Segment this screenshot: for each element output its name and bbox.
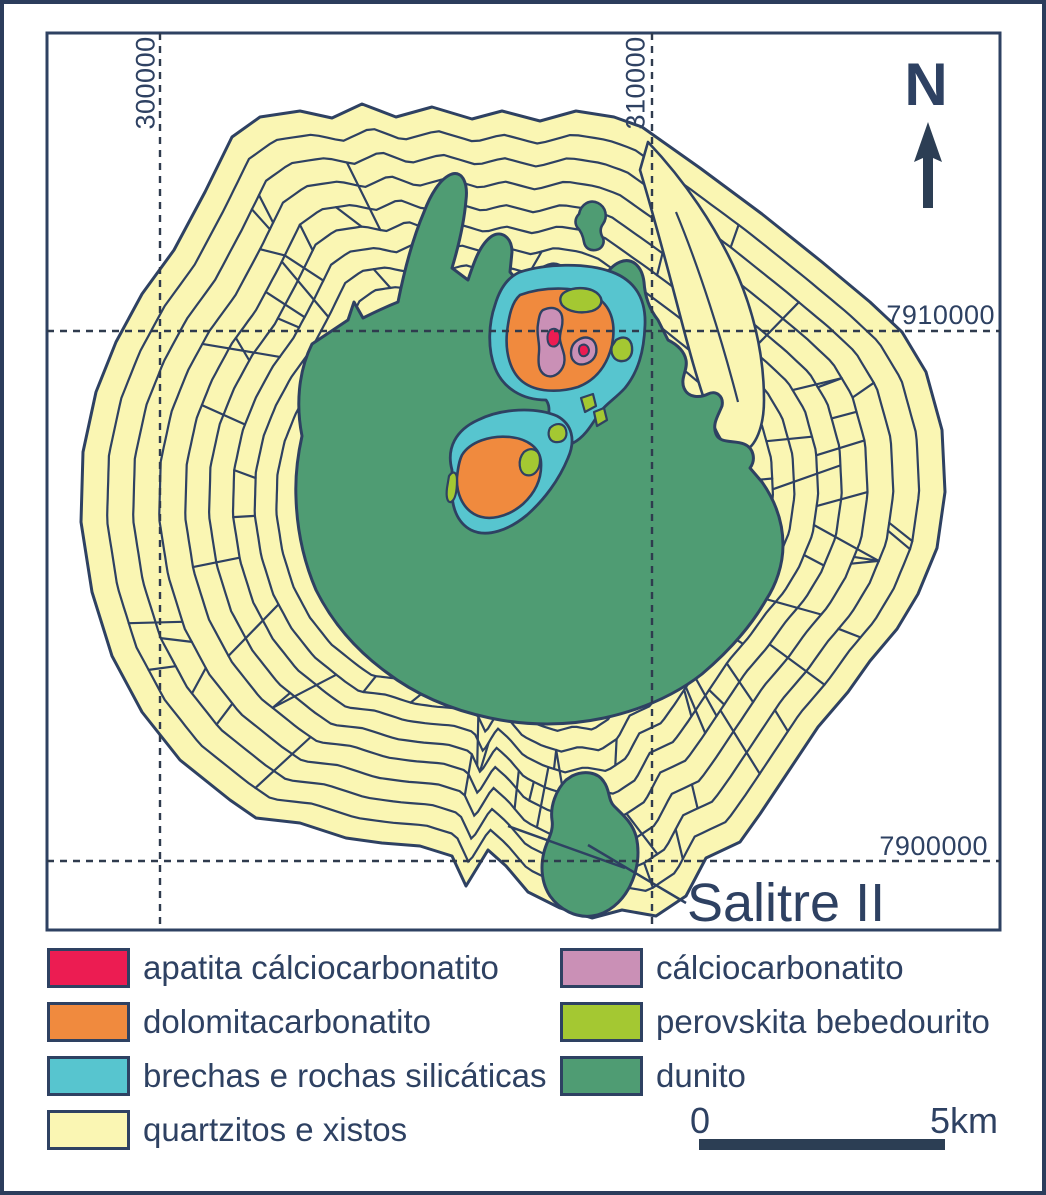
legend-swatch-apatita bbox=[47, 948, 130, 988]
map-region-perovskita-south-3 bbox=[447, 473, 457, 503]
salitre-annotation: Salitre II bbox=[687, 876, 885, 930]
legend-column-left: apatita cálciocarbonatito dolomitacarbon… bbox=[47, 948, 547, 1164]
legend-swatch-quartzitos bbox=[47, 1110, 130, 1150]
legend-item-dunito: dunito bbox=[560, 1056, 990, 1096]
legend-swatch-calcio bbox=[560, 948, 643, 988]
north-label: N bbox=[898, 55, 954, 115]
legend-item-quartzitos: quartzitos e xistos bbox=[47, 1110, 547, 1150]
legend-label-quartzitos: quartzitos e xistos bbox=[143, 1111, 407, 1149]
grid-label-300000: 300000 bbox=[133, 40, 160, 130]
legend-label-dolomita: dolomitacarbonatito bbox=[143, 1003, 431, 1041]
legend-swatch-dolomita bbox=[47, 1002, 130, 1042]
scalebar-start-label: 0 bbox=[690, 1103, 710, 1139]
map-region-perovskita-south-2 bbox=[520, 449, 540, 475]
legend-label-perovskita: perovskita bebedourito bbox=[656, 1003, 990, 1041]
map-region-apatita-2 bbox=[579, 345, 589, 357]
legend-item-perovskita: perovskita bebedourito bbox=[560, 1002, 990, 1042]
legend-item-brechas: brechas e rochas silicáticas bbox=[47, 1056, 547, 1096]
grid-label-7900000: 7900000 bbox=[848, 833, 988, 860]
legend-swatch-brechas bbox=[47, 1056, 130, 1096]
scalebar-end-label: 5km bbox=[930, 1103, 998, 1139]
legend-label-apatita: apatita cálciocarbonatito bbox=[143, 949, 499, 987]
legend-item-calcio: cálciocarbonatito bbox=[560, 948, 990, 988]
grid-label-7910000: 7910000 bbox=[855, 302, 995, 329]
map-region-perovskita-north-top bbox=[560, 288, 601, 312]
grid-label-310000: 310000 bbox=[623, 40, 650, 130]
legend-swatch-perovskita bbox=[560, 1002, 643, 1042]
figure-canvas: 300000 310000 7910000 7900000 N Salitre … bbox=[0, 0, 1046, 1195]
scalebar-bar bbox=[699, 1139, 945, 1150]
map-region-perovskita-north-right bbox=[611, 338, 632, 362]
map-region-perovskita-south-1 bbox=[549, 424, 567, 442]
legend-item-dolomita: dolomitacarbonatito bbox=[47, 1002, 547, 1042]
legend-swatch-dunito bbox=[560, 1056, 643, 1096]
legend-column-right: cálciocarbonatito perovskita bebedourito… bbox=[560, 948, 990, 1110]
legend-label-dunito: dunito bbox=[656, 1057, 746, 1095]
legend-label-brechas: brechas e rochas silicáticas bbox=[143, 1057, 547, 1095]
legend-item-apatita: apatita cálciocarbonatito bbox=[47, 948, 547, 988]
legend-label-calcio: cálciocarbonatito bbox=[656, 949, 904, 987]
